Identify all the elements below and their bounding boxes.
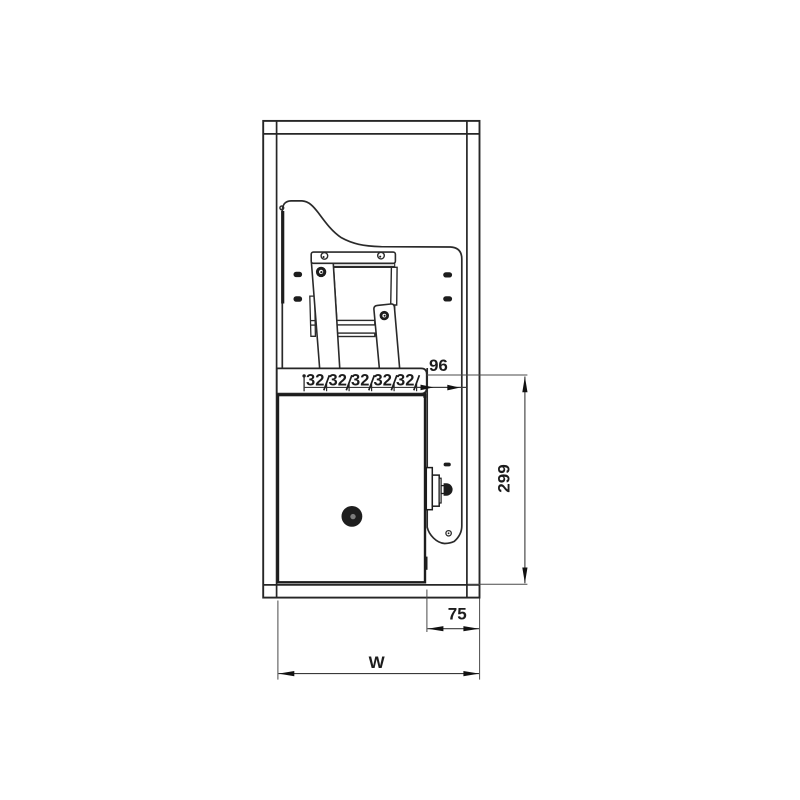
svg-text:32: 32	[351, 371, 369, 389]
svg-text:32: 32	[396, 371, 414, 389]
svg-text:96: 96	[429, 356, 448, 375]
svg-text:32: 32	[374, 371, 392, 389]
svg-text:W: W	[369, 653, 386, 672]
svg-text:32: 32	[329, 371, 347, 389]
svg-text:32: 32	[306, 371, 324, 389]
svg-text:75: 75	[448, 605, 467, 624]
svg-text:299: 299	[495, 464, 514, 492]
